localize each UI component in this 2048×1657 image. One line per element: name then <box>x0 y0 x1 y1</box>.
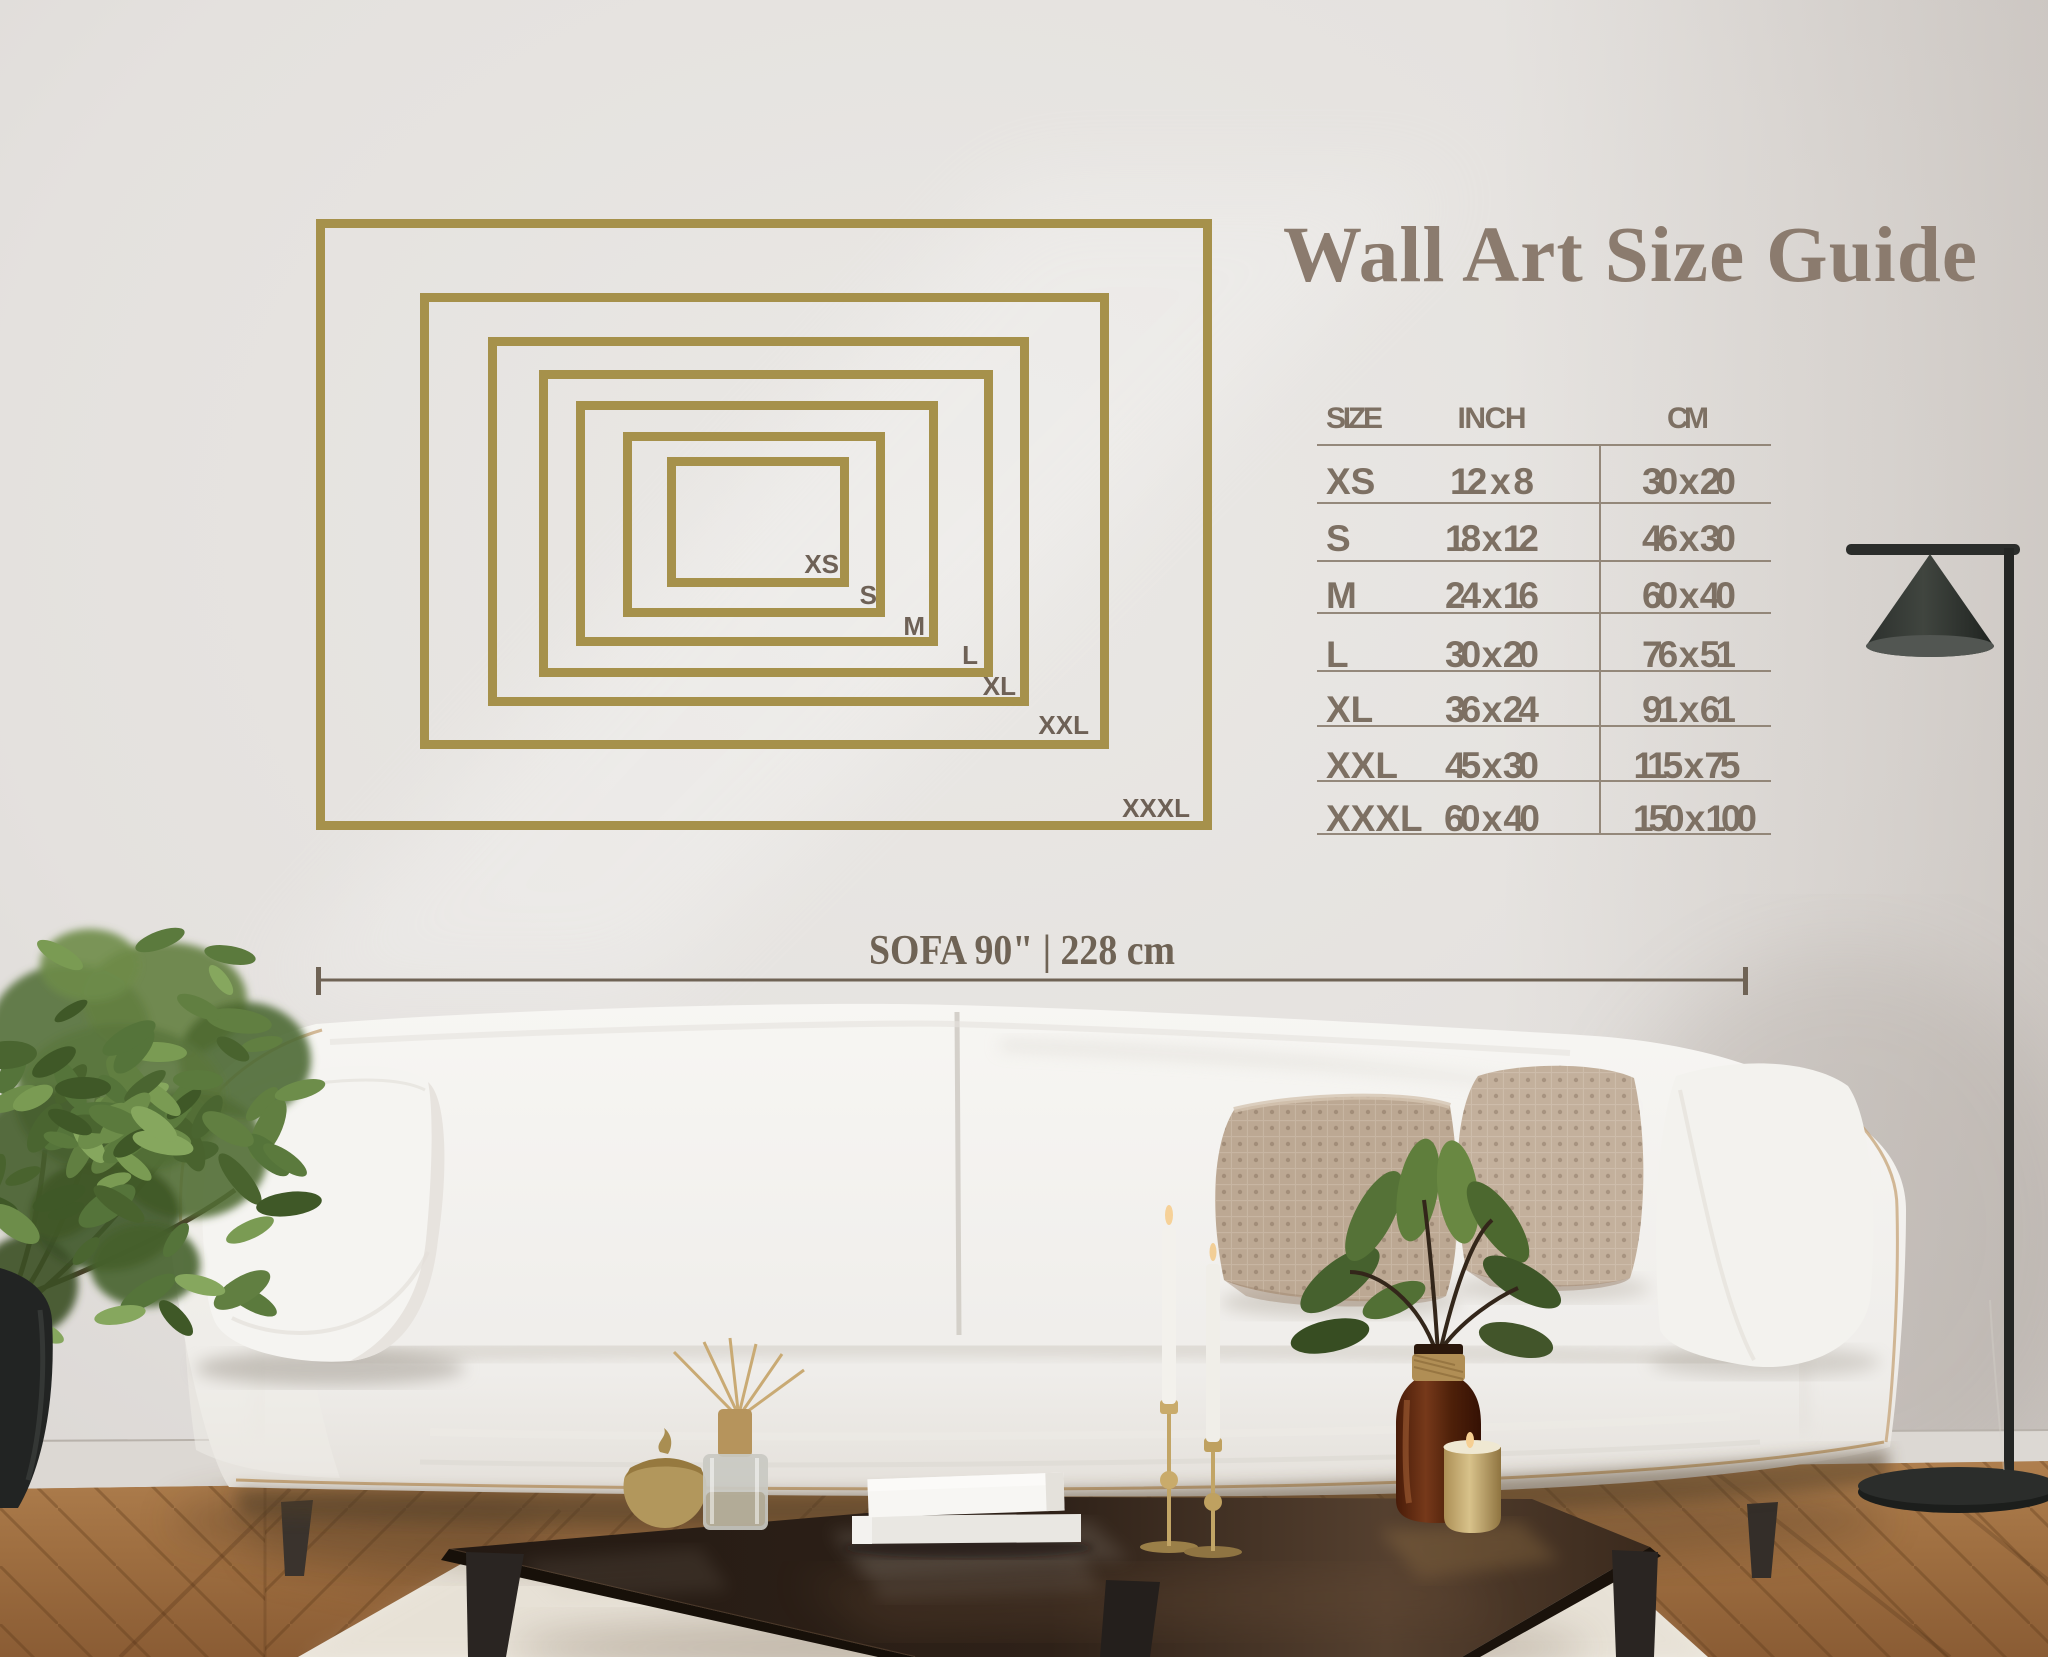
svg-text:12 x 8: 12 x 8 <box>1450 461 1534 502</box>
svg-text:45 x 30: 45 x 30 <box>1445 745 1539 786</box>
svg-text:M: M <box>1326 575 1357 616</box>
svg-text:CM: CM <box>1667 402 1709 435</box>
svg-text:XXXL: XXXL <box>1122 793 1190 823</box>
svg-text:46 x 30: 46 x 30 <box>1642 518 1736 559</box>
svg-text:M: M <box>903 611 925 641</box>
svg-text:SOFA 90" | 228 cm: SOFA 90" | 228 cm <box>869 928 1175 974</box>
svg-text:XXL: XXL <box>1326 745 1398 786</box>
svg-text:XS: XS <box>1326 461 1375 502</box>
svg-text:Wall Art Size Guide: Wall Art Size Guide <box>1283 212 1977 299</box>
svg-text:XL: XL <box>983 671 1016 701</box>
svg-text:36 x 24: 36 x 24 <box>1445 689 1539 730</box>
svg-text:L: L <box>962 640 978 670</box>
svg-text:XL: XL <box>1326 689 1373 730</box>
svg-text:24 x 16: 24 x 16 <box>1445 575 1539 616</box>
svg-text:76 x 51: 76 x 51 <box>1642 634 1736 675</box>
svg-text:150 x 100: 150 x 100 <box>1633 798 1757 839</box>
svg-text:60 x 40: 60 x 40 <box>1642 575 1736 616</box>
svg-text:S: S <box>1326 518 1351 559</box>
svg-text:S: S <box>860 580 877 610</box>
svg-text:30 x 20: 30 x 20 <box>1445 634 1539 675</box>
svg-text:XXL: XXL <box>1038 710 1089 740</box>
svg-text:115 x 75: 115 x 75 <box>1634 745 1741 786</box>
svg-text:INCH: INCH <box>1458 402 1527 435</box>
svg-text:XXXL: XXXL <box>1326 798 1423 839</box>
svg-text:91 x 61: 91 x 61 <box>1642 689 1736 730</box>
svg-text:60 x 40: 60 x 40 <box>1444 798 1540 839</box>
svg-text:L: L <box>1326 634 1349 675</box>
svg-text:30 x 20: 30 x 20 <box>1642 461 1736 502</box>
svg-text:XS: XS <box>804 549 839 579</box>
svg-text:SIZE: SIZE <box>1326 402 1383 435</box>
svg-text:18 x 12: 18 x 12 <box>1445 518 1539 559</box>
